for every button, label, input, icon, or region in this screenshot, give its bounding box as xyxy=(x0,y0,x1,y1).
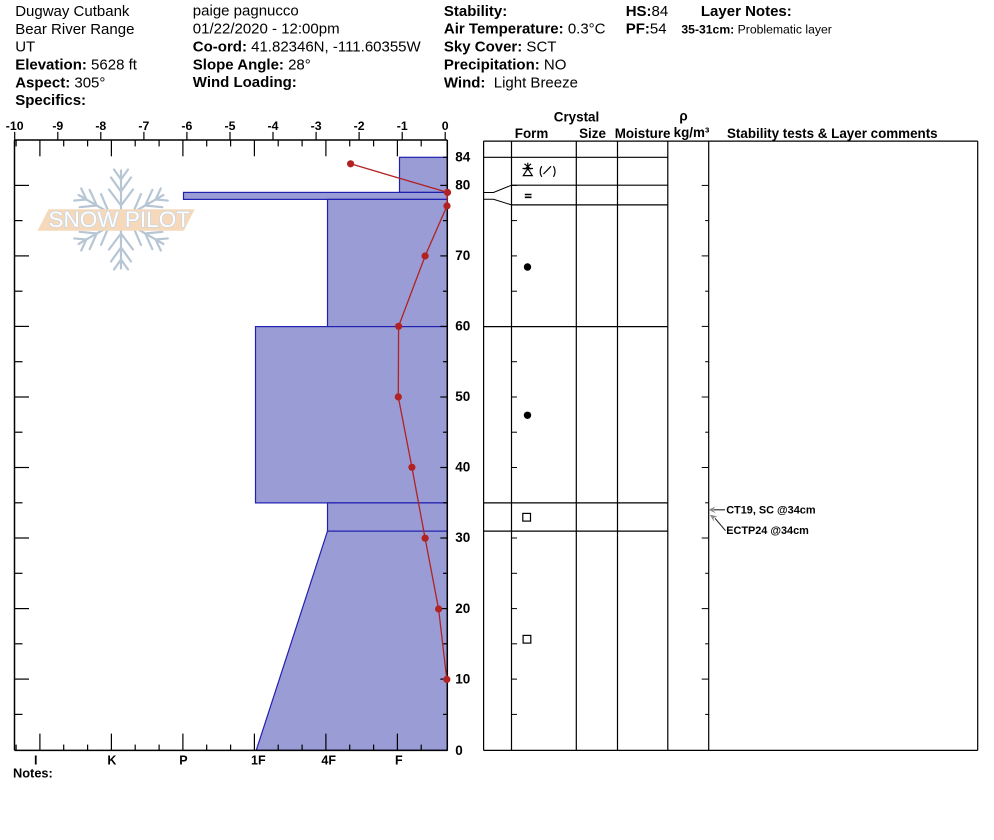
svg-text:PF:54: PF:54 xyxy=(626,21,667,38)
svg-text:-4: -4 xyxy=(268,119,279,133)
svg-text:Wind: Light Breeze: Wind: Light Breeze xyxy=(444,74,578,91)
svg-text:Elevation: 5628 ft: Elevation: 5628 ft xyxy=(15,57,138,74)
svg-text:Notes:: Notes: xyxy=(13,766,53,781)
svg-text:paige pagnucco: paige pagnucco xyxy=(193,2,299,19)
svg-text:-1: -1 xyxy=(397,119,408,133)
svg-text:01/22/2020 - 12:00pm: 01/22/2020 - 12:00pm xyxy=(193,20,340,37)
svg-text:Sky Cover: SCT: Sky Cover: SCT xyxy=(444,39,557,56)
svg-text:Stability:: Stability: xyxy=(444,3,507,20)
svg-text:84: 84 xyxy=(455,150,471,165)
svg-text:0: 0 xyxy=(442,119,449,133)
svg-text:Wind Loading:: Wind Loading: xyxy=(193,74,297,91)
svg-text:20: 20 xyxy=(455,601,470,616)
svg-text:35-31cm: Problematic layer: 35-31cm: Problematic layer xyxy=(681,23,831,37)
svg-text:Aspect: 305°: Aspect: 305° xyxy=(15,74,105,91)
svg-text:-8: -8 xyxy=(95,119,106,133)
svg-text:-2: -2 xyxy=(354,119,365,133)
svg-text:F: F xyxy=(395,754,403,768)
svg-text:SNOW PILOT: SNOW PILOT xyxy=(49,207,191,232)
svg-text:K: K xyxy=(107,754,116,768)
svg-text:Layer Notes:: Layer Notes: xyxy=(701,3,792,20)
svg-text:30: 30 xyxy=(455,530,470,545)
svg-text:P: P xyxy=(179,754,187,768)
svg-text:50: 50 xyxy=(455,389,470,404)
svg-text:ρ: ρ xyxy=(679,109,687,124)
svg-text:HS:84: HS:84 xyxy=(626,3,669,20)
svg-text:-3: -3 xyxy=(311,119,322,133)
svg-text:-5: -5 xyxy=(225,119,236,133)
svg-text:-6: -6 xyxy=(181,119,192,133)
svg-text:Air Temperature: 0.3°C: Air Temperature: 0.3°C xyxy=(444,21,606,38)
svg-text:Form: Form xyxy=(515,126,549,141)
svg-text:-9: -9 xyxy=(52,119,63,133)
svg-text:kg/m³: kg/m³ xyxy=(674,125,710,140)
svg-text:Size: Size xyxy=(579,126,606,141)
svg-text:Crystal: Crystal xyxy=(554,109,599,124)
svg-text:0: 0 xyxy=(455,743,463,758)
svg-text:10: 10 xyxy=(455,671,470,686)
svg-text:-7: -7 xyxy=(138,119,149,133)
svg-text:Co-ord: 41.82346N, -111.60355W: Co-ord: 41.82346N, -111.60355W xyxy=(193,38,422,55)
svg-text:Dugway Cutbank: Dugway Cutbank xyxy=(15,3,130,20)
svg-text:Specifics:: Specifics: xyxy=(15,92,86,109)
svg-text:Moisture: Moisture xyxy=(615,126,671,141)
svg-text:Precipitation: NO: Precipitation: NO xyxy=(444,57,567,74)
svg-text:-10: -10 xyxy=(6,119,24,133)
svg-text:1F: 1F xyxy=(251,754,266,768)
svg-text:60: 60 xyxy=(455,319,470,334)
svg-text:Slope Angle: 28°: Slope Angle: 28° xyxy=(193,56,311,73)
svg-text:Stability tests & Layer commen: Stability tests & Layer comments xyxy=(727,126,938,141)
svg-text:Bear River Range: Bear River Range xyxy=(15,21,134,38)
svg-text:40: 40 xyxy=(455,460,470,475)
svg-text:4F: 4F xyxy=(321,754,336,768)
svg-text:ECTP24 @34cm: ECTP24 @34cm xyxy=(726,525,809,537)
svg-text:80: 80 xyxy=(455,178,470,193)
svg-text:CT19, SC @34cm: CT19, SC @34cm xyxy=(726,505,816,517)
svg-text:70: 70 xyxy=(455,248,470,263)
svg-text:UT: UT xyxy=(15,39,35,56)
